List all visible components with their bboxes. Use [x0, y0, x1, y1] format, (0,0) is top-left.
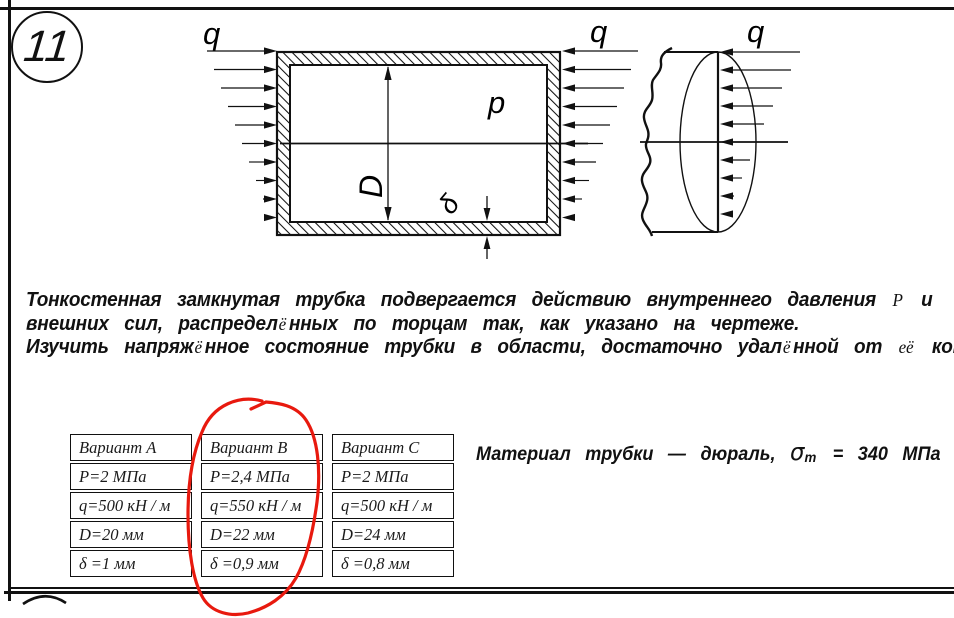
load-arrow [720, 156, 733, 163]
dimension-arrowhead-up [384, 66, 391, 80]
q-end-label: q [747, 14, 765, 49]
load-arrow [562, 177, 575, 184]
q-left-label: q [203, 16, 221, 51]
variant-header-cell: Вариант A [70, 434, 192, 461]
material-text: Материал трубки — дюраль, [476, 444, 790, 465]
thickness-arrowhead-lower [484, 236, 491, 249]
text-segment: внешних сил, распредел [26, 313, 278, 335]
variants-table: Вариант AP=2 МПаq=500 кН / мD=20 ммδ =1 … [70, 434, 454, 577]
bottom-separator-thin-line [8, 587, 954, 589]
load-arrow [264, 177, 277, 184]
text-segment: нной от [793, 336, 898, 358]
variant-value-cell: q=550 кН / м [201, 492, 323, 519]
load-arrow [264, 195, 277, 202]
text-segment: концов. [916, 336, 954, 358]
load-arrow [264, 103, 277, 110]
variant-column: Вариант BP=2,4 МПаq=550 кН / мD=22 ммδ =… [201, 434, 323, 577]
variant-value-cell: P=2 МПа [70, 463, 192, 490]
sigma-symbol: σ [790, 438, 804, 466]
load-arrow [720, 66, 733, 73]
load-arrow [562, 195, 575, 202]
load-arrow [264, 47, 277, 54]
sigma-subscript: т [804, 449, 816, 465]
load-arrow [720, 174, 733, 181]
problem-statement: Тонкостенная замкнутая трубка подвергает… [26, 289, 954, 360]
load-arrow [562, 214, 575, 221]
load-arrow [720, 84, 733, 91]
load-arrow [264, 158, 277, 165]
text-segment: ё [783, 337, 790, 357]
load-arrow [562, 121, 575, 128]
pressure-label: p [487, 85, 505, 120]
load-arrow [720, 120, 733, 127]
text-segment: и [906, 289, 933, 311]
load-arrow [720, 102, 733, 109]
material-value: = 340 МПа [818, 444, 940, 465]
tube-drawing: D δ p q q q [0, 0, 954, 272]
variant-header-cell: Вариант B [201, 434, 323, 461]
load-arrow [562, 84, 575, 91]
q-right-label: q [590, 14, 608, 49]
text-segment: её [899, 337, 914, 357]
text-segment: Тонкостенная замкнутая трубка подвергает… [26, 289, 892, 311]
end-view-center-arrowhead [720, 138, 733, 145]
variant-column: Вариант AP=2 МПаq=500 кН / мD=20 ммδ =1 … [70, 434, 192, 577]
load-arrow [264, 140, 277, 147]
scanned-problem-page: { "problem": { "number": "11", "lines": … [0, 0, 954, 618]
text-segment: ё [195, 337, 202, 357]
statement-line-2: внешних сил, распределённых по торцам та… [26, 313, 954, 337]
variant-value-cell: P=2 МПа [332, 463, 454, 490]
text-segment: ё [279, 314, 286, 334]
load-arrow [562, 140, 575, 147]
load-arrow [720, 192, 733, 199]
variant-value-cell: D=24 мм [332, 521, 454, 548]
load-arrow [562, 103, 575, 110]
variant-value-cell: q=500 кН / м [70, 492, 192, 519]
material-note: Материал трубки — дюраль, σт = 340 МПа [476, 438, 940, 466]
load-arrow [562, 47, 575, 54]
variant-value-cell: q=500 кН / м [332, 492, 454, 519]
distributed-load-arrows [207, 47, 800, 221]
variant-value-cell: P=2,4 МПа [201, 463, 323, 490]
text-segment: P [893, 290, 903, 310]
load-arrow [264, 121, 277, 128]
load-arrow [264, 66, 277, 73]
variant-value-cell: δ =0,9 мм [201, 550, 323, 577]
next-problem-badge-arc [23, 596, 66, 604]
load-arrow [562, 158, 575, 165]
load-arrow [562, 66, 575, 73]
variant-value-cell: D=20 мм [70, 521, 192, 548]
variant-value-cell: δ =0,8 мм [332, 550, 454, 577]
variant-value-cell: D=22 мм [201, 521, 323, 548]
load-arrow [264, 84, 277, 91]
dimension-arrowhead-down [384, 207, 391, 221]
diameter-label: D [353, 175, 389, 198]
variant-header-cell: Вариант C [332, 434, 454, 461]
statement-line-1: Тонкостенная замкнутая трубка подвергает… [26, 289, 954, 313]
text-segment: Изучить напряж [26, 336, 194, 358]
load-arrow [720, 210, 733, 217]
bottom-separator-thick-line [4, 591, 954, 594]
statement-line-3: Изучить напряжённое состояние трубки в о… [26, 336, 954, 360]
thickness-label: δ [433, 188, 466, 220]
thickness-arrowhead-upper [484, 208, 491, 221]
variant-value-cell: δ =1 мм [70, 550, 192, 577]
variant-column: Вариант CP=2 МПаq=500 кН / мD=24 ммδ =0,… [332, 434, 454, 577]
text-segment: нное состояние трубки в области, достато… [205, 336, 782, 358]
load-arrow [264, 214, 277, 221]
text-segment: нных по торцам так, как указано на черте… [289, 313, 799, 335]
